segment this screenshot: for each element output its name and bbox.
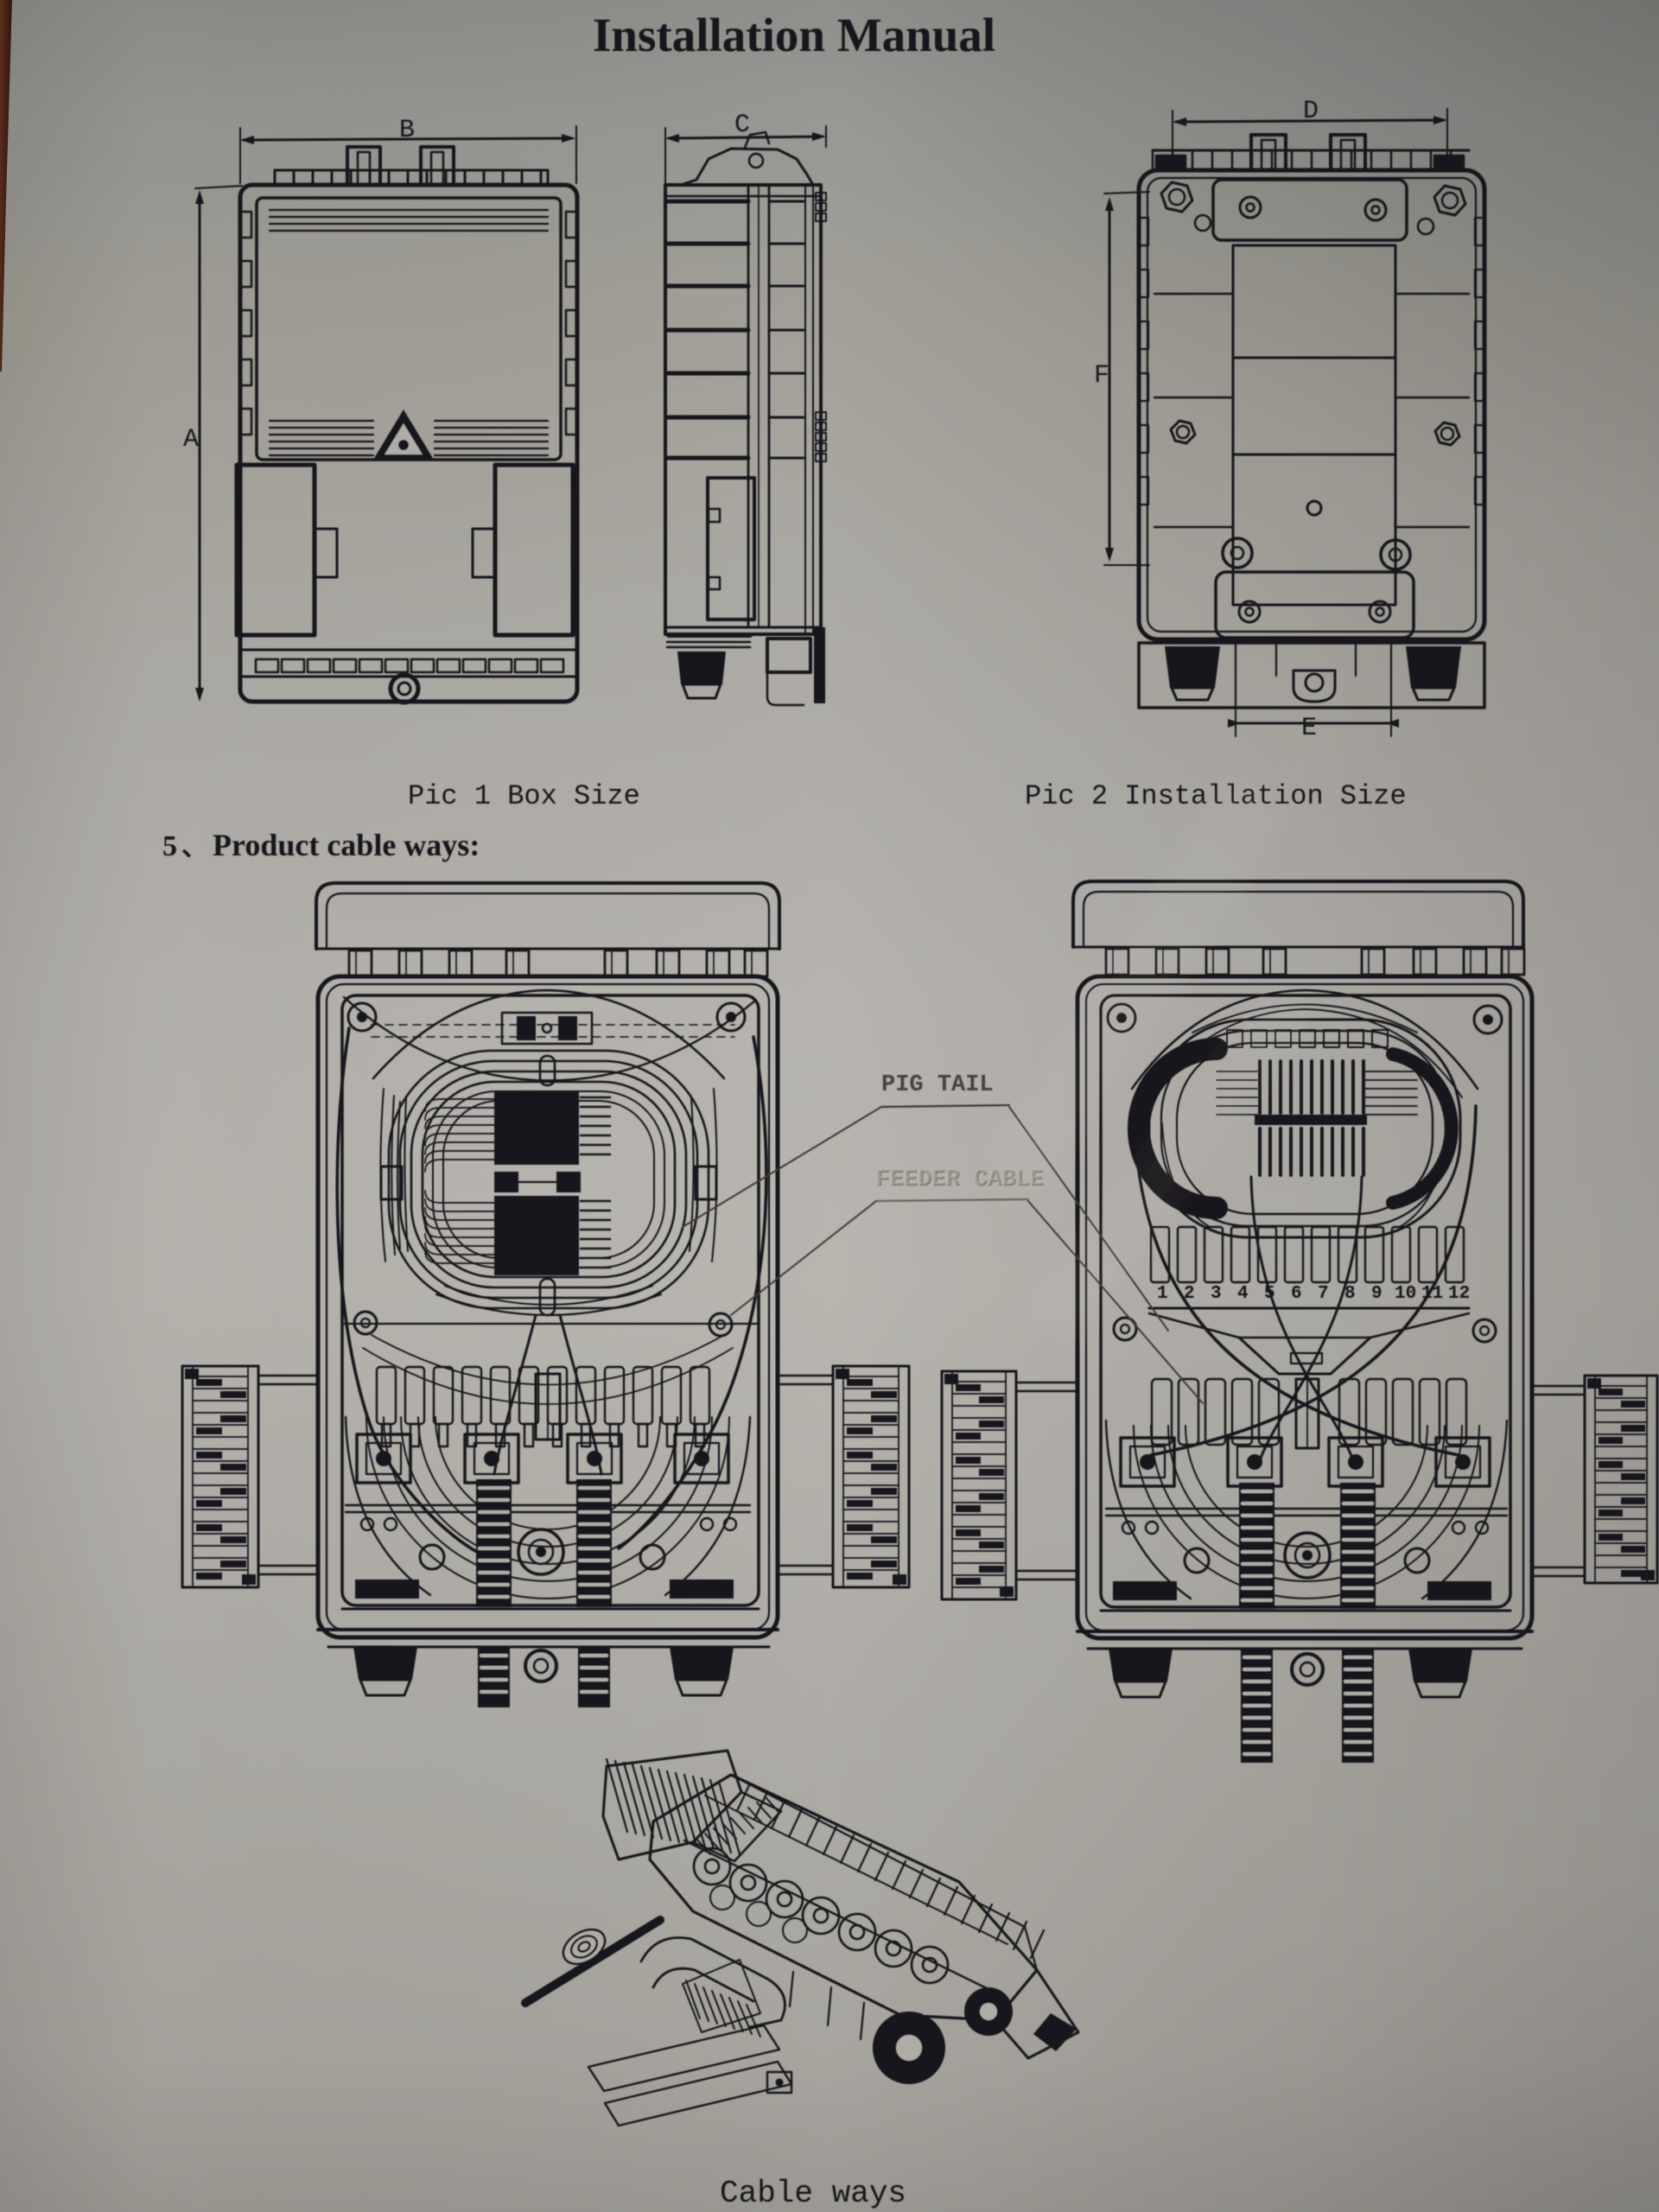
svg-text:7: 7: [1318, 1284, 1329, 1304]
svg-text:B: B: [399, 116, 415, 145]
svg-text:D: D: [1303, 97, 1319, 126]
svg-text:6: 6: [1291, 1284, 1302, 1304]
svg-text:3: 3: [1211, 1284, 1222, 1304]
svg-text:F: F: [1094, 361, 1109, 391]
svg-text:4: 4: [1237, 1284, 1249, 1304]
svg-text:Installation Manual: Installation Manual: [593, 9, 995, 61]
svg-text:9: 9: [1371, 1284, 1382, 1304]
svg-text:C: C: [734, 111, 750, 140]
svg-text:PIG TAIL: PIG TAIL: [881, 1072, 994, 1098]
svg-text:Pic 1 Box Size: Pic 1 Box Size: [408, 780, 640, 812]
svg-text:A: A: [183, 425, 199, 454]
svg-text:1: 1: [1157, 1284, 1168, 1304]
svg-text:Cable ways: Cable ways: [720, 2176, 906, 2211]
svg-text:5: 5: [162, 830, 177, 862]
svg-text:、: 、: [181, 833, 207, 861]
svg-text:E: E: [1301, 714, 1317, 743]
svg-text:12: 12: [1448, 1284, 1470, 1304]
svg-text:10: 10: [1395, 1284, 1416, 1304]
svg-text:Product cable ways:: Product cable ways:: [213, 828, 480, 862]
